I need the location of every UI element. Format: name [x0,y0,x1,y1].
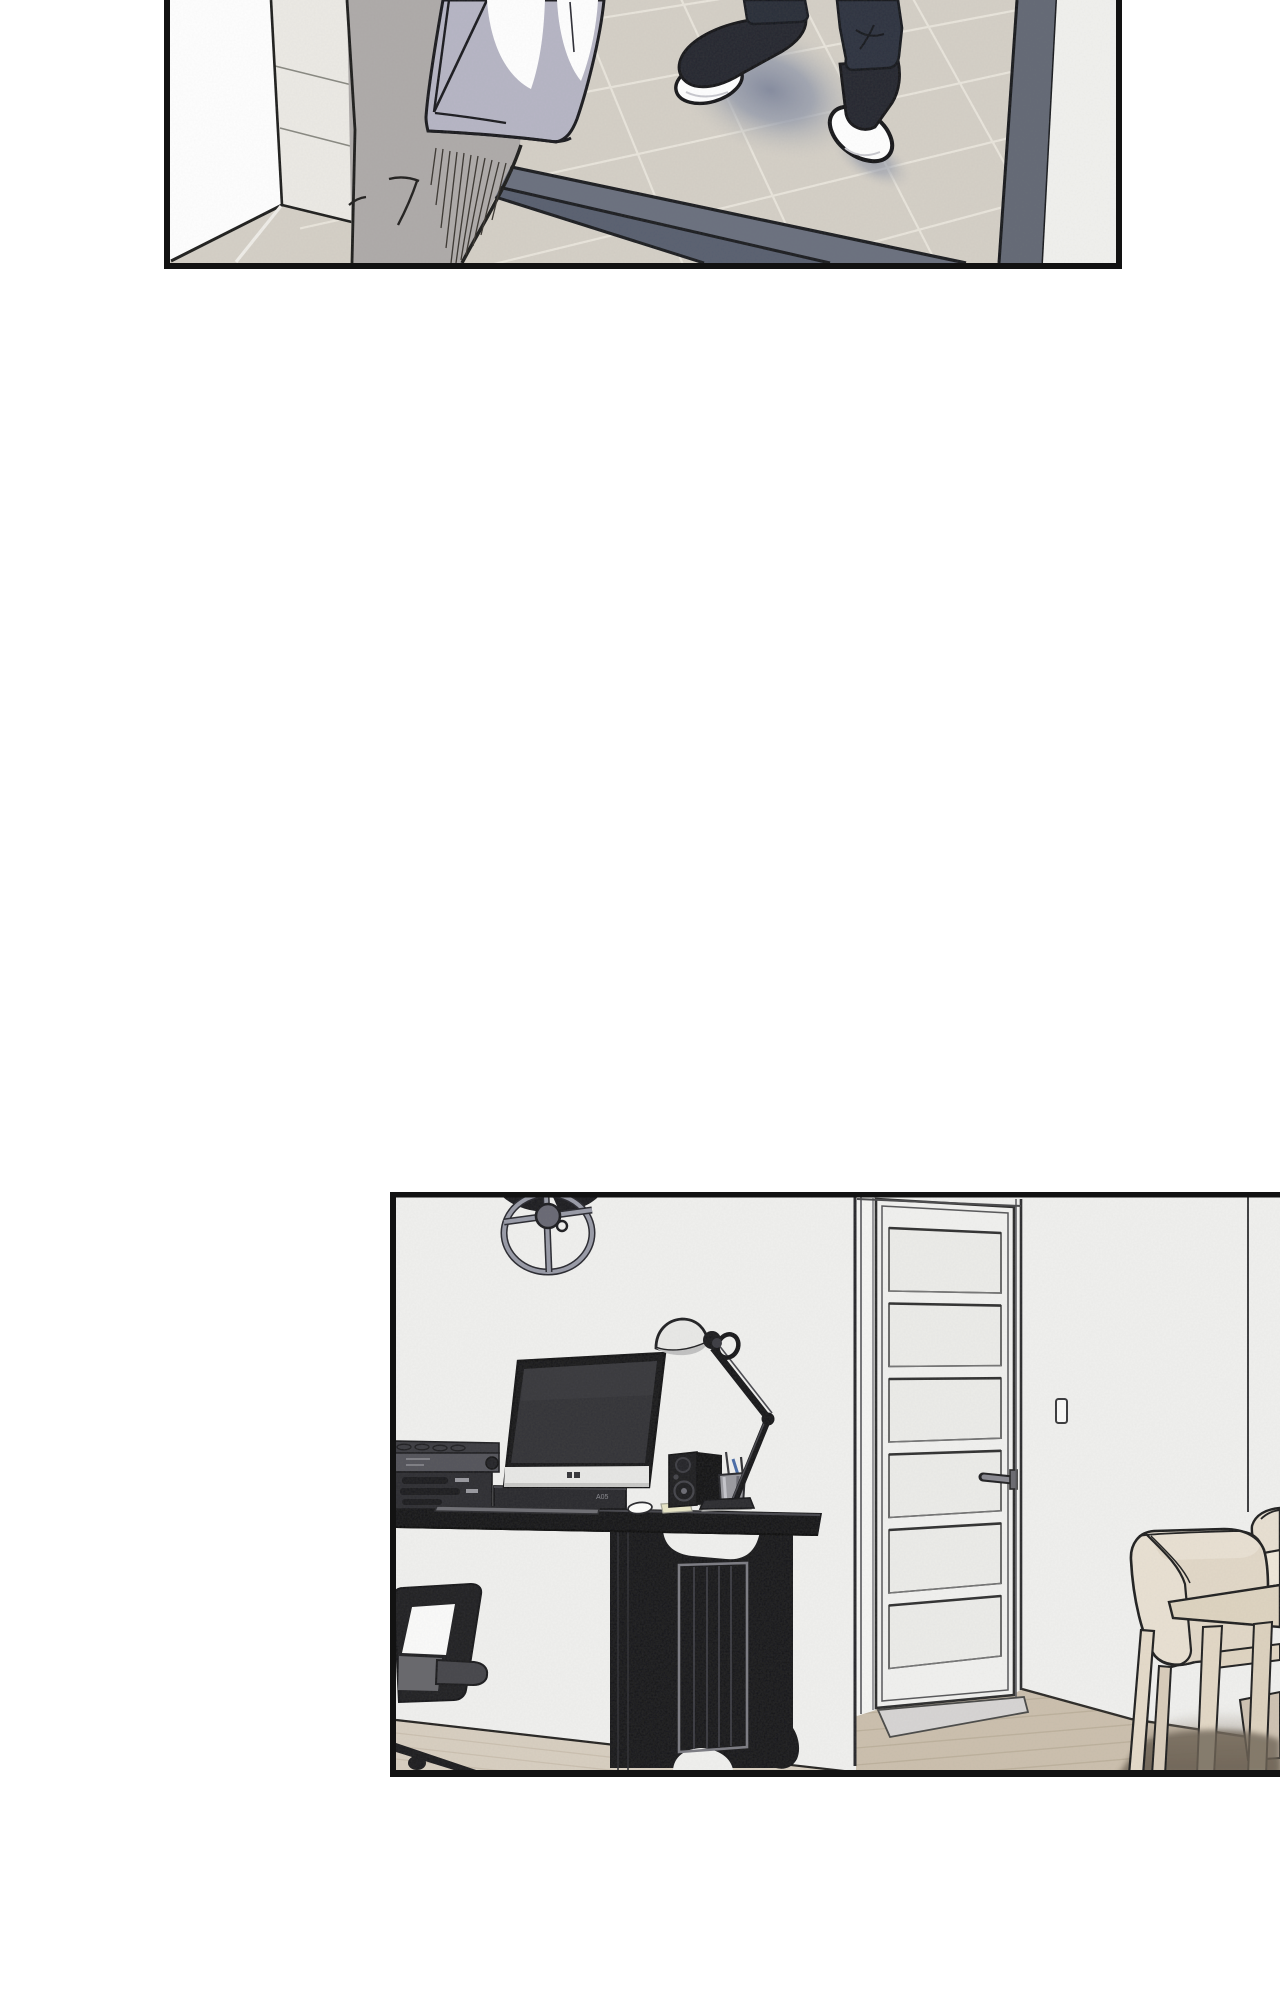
svg-text:A05: A05 [596,1494,609,1501]
